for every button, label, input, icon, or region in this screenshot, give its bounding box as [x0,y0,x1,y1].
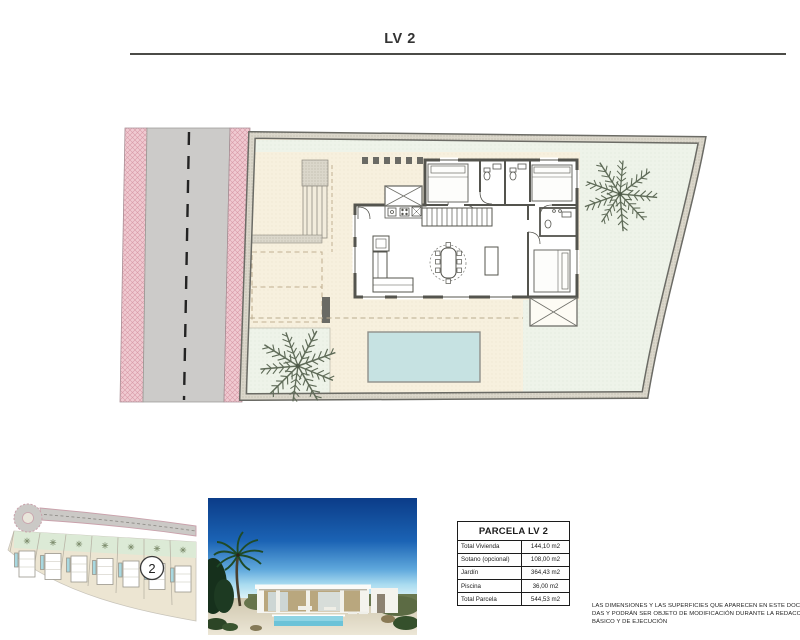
row-value: 544,53 m2 [522,596,569,603]
title-rule [130,53,786,55]
villa-render [208,498,417,635]
row-label: Total Vivienda [458,541,522,553]
bedroom-1-bed [428,164,468,202]
bedroom-3-bed [534,250,570,292]
pool [368,332,480,382]
retaining-wall [252,235,322,243]
row-value: 144,10 m2 [522,543,569,550]
bedroom-2-bed [532,165,572,201]
disclaimer-line: BÁSICO Y DE EJECUCIÓN [592,618,800,626]
ramp-block [302,160,328,186]
stairs [422,208,492,226]
render-villa [255,585,398,614]
row-label: Total Parcela [458,593,522,605]
table-row: Sotano (opcional) 108,00 m2 [458,554,569,567]
disclaimer-text: LAS DIMENSIONES Y LAS SUPERFICIES QUE AP… [592,602,800,627]
row-value: 108,00 m2 [522,556,569,563]
row-value: 36,00 m2 [522,583,569,590]
table-row: Piscina 36,00 m2 [458,580,569,593]
kitchen-island [485,247,498,275]
row-label: Sotano (opcional) [458,554,522,566]
main-site-plan [110,120,710,410]
wall-stub [322,297,330,323]
parcel-table-title: PARCELA LV 2 [458,522,569,541]
row-value: 364,43 m2 [522,569,569,576]
kitchen [385,206,422,218]
pergola-x-entrance [385,186,422,206]
table-row: Jardín 364,43 m2 [458,567,569,580]
row-label: Jardín [458,567,522,579]
road-embankment-left [120,128,147,402]
parcel-table: PARCELA LV 2 Total Vivienda 144,10 m2 So… [457,521,570,606]
disclaimer-line: DAS Y PODRÁN SER OBJETO DE MODIFICACIÓN … [592,610,800,618]
development-site-map: 2 [0,495,200,640]
disclaimer-line: LAS DIMENSIONES Y LAS SUPERFICIES QUE AP… [592,602,800,610]
plan-sheet: LV 2 [0,0,800,640]
plot-badge: 2 [141,557,164,580]
pergola-x-terrace [530,298,577,326]
table-row: Total Vivienda 144,10 m2 [458,541,569,554]
road [120,128,250,402]
exterior-stairs [303,186,327,238]
plot-badge-number: 2 [148,561,155,576]
road-surface [143,128,230,402]
access-road [14,504,196,536]
row-label: Piscina [458,580,522,592]
table-row: Total Parcela 544,53 m2 [458,593,569,605]
page-title: LV 2 [0,31,800,47]
